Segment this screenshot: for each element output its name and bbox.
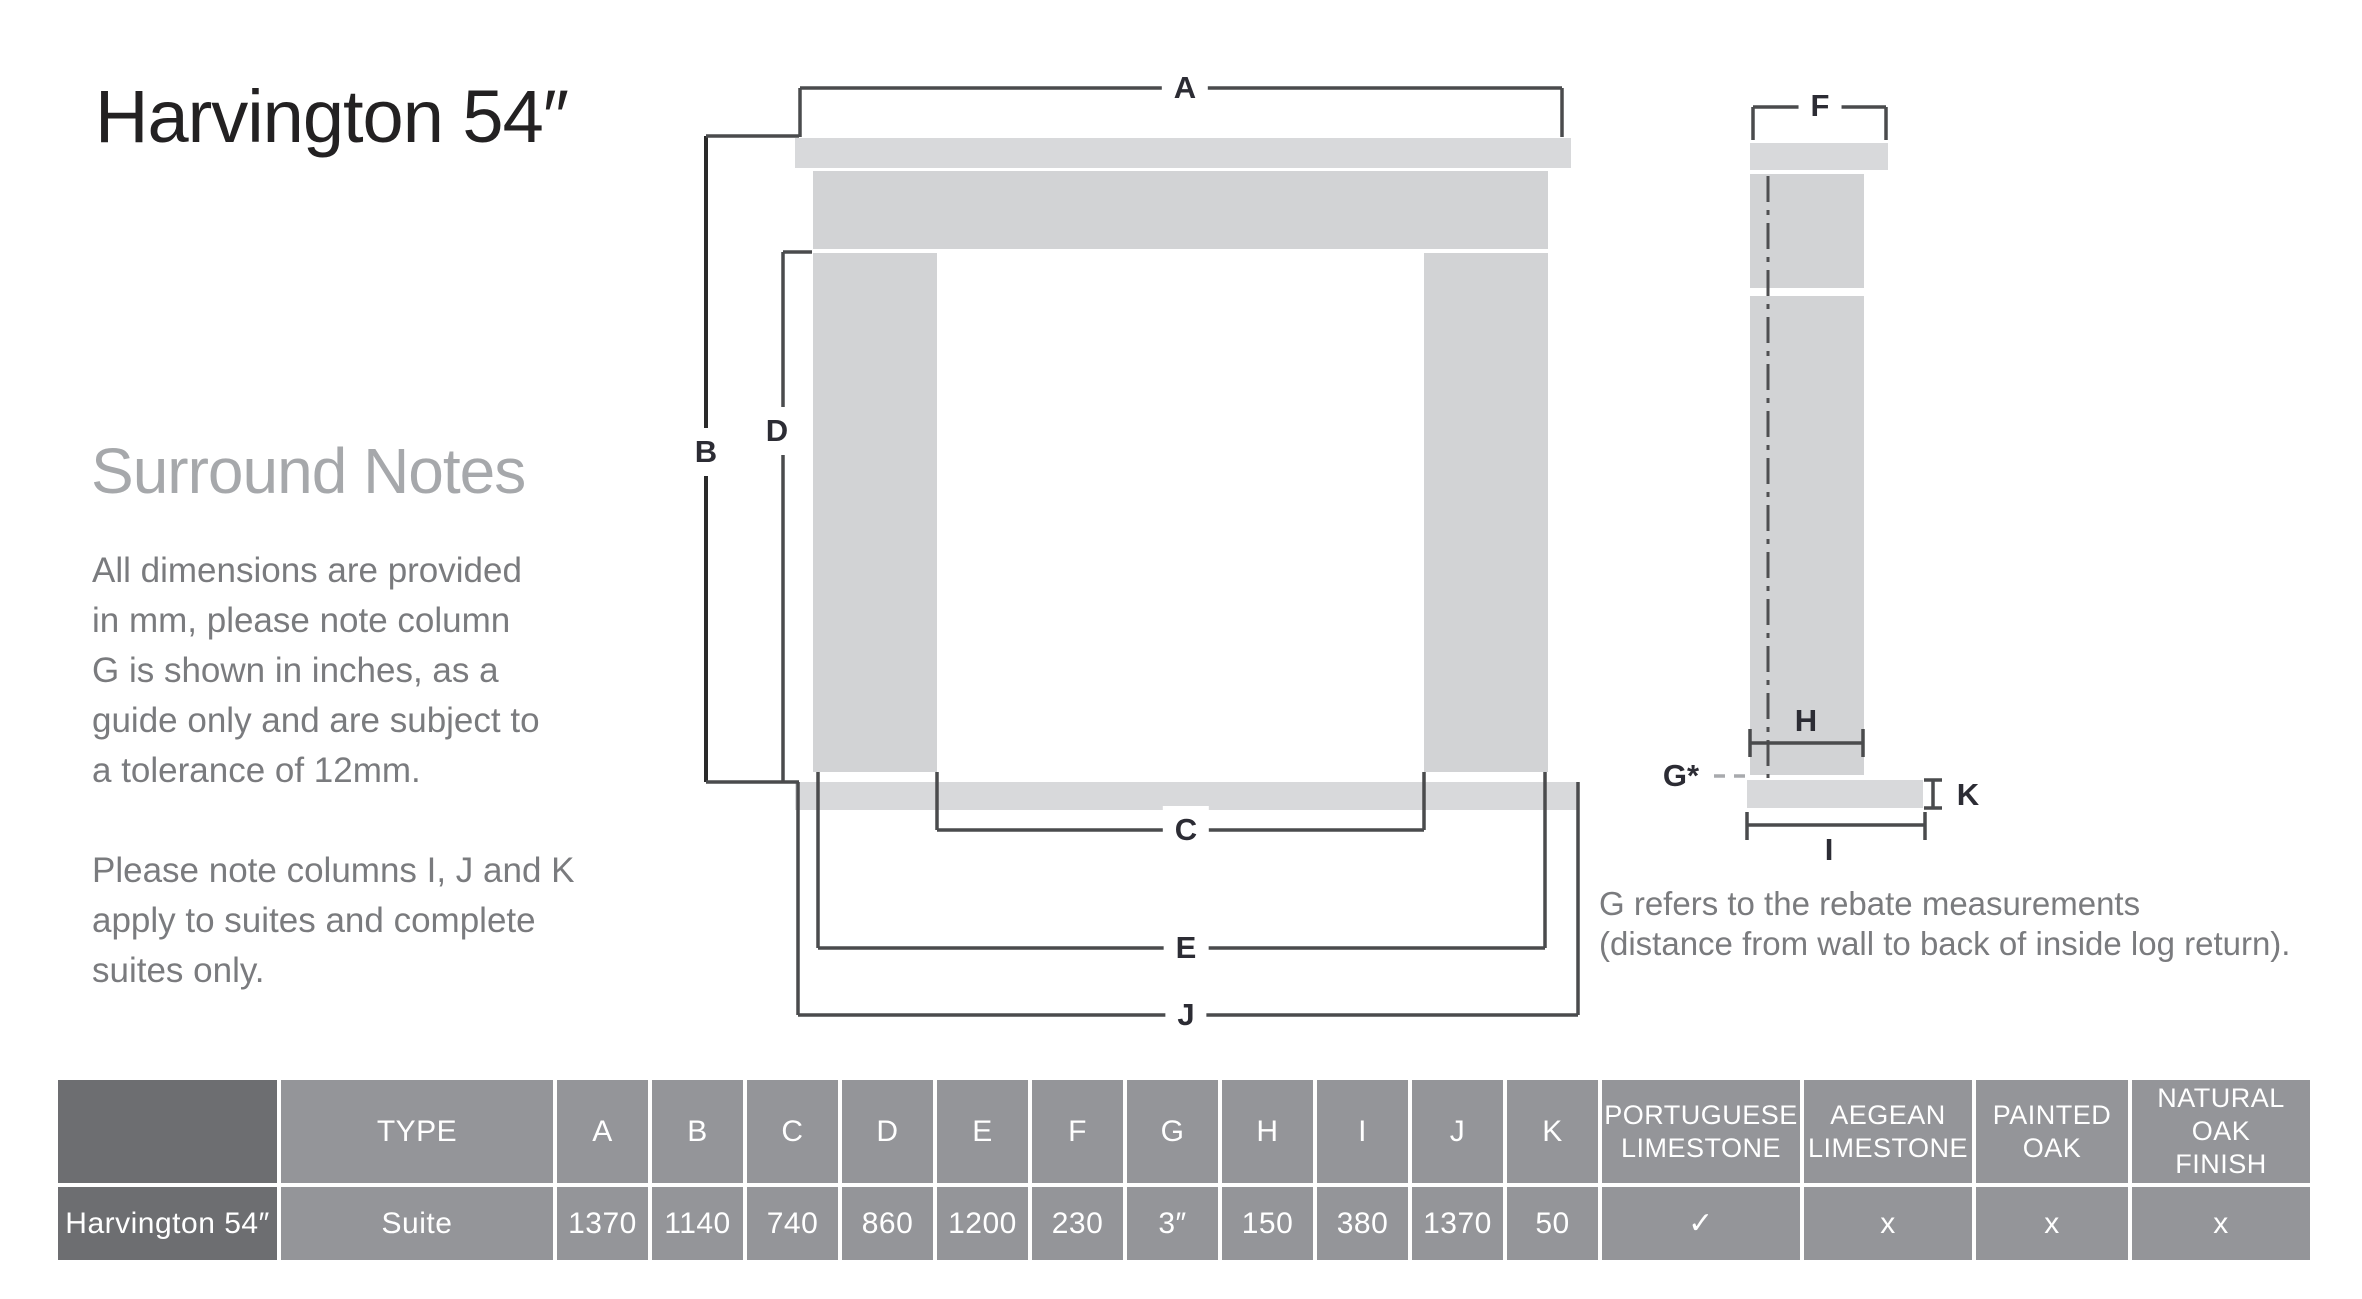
dim-label-k: K — [1957, 777, 1979, 813]
table-header-type: TYPE — [281, 1080, 553, 1183]
dim-k-bracket — [1924, 780, 1942, 808]
table-value-c: 740 — [747, 1187, 838, 1260]
dim-label-a: A — [1162, 64, 1208, 112]
table-value-f: 230 — [1032, 1187, 1123, 1260]
spec-table: TYPE A B C D E F G H I J K PORTUGUESE LI… — [58, 1080, 2310, 1260]
dim-label-c: C — [1163, 806, 1209, 854]
table-value-h: 150 — [1222, 1187, 1313, 1260]
table-header-dim-f: F — [1032, 1080, 1123, 1183]
dim-label-e: E — [1164, 924, 1209, 972]
table-header-dim-g: G — [1127, 1080, 1218, 1183]
table-value-a: 1370 — [557, 1187, 648, 1260]
spec-sheet-page: Harvington 54″ Surround Notes All dimens… — [0, 0, 2362, 1299]
dim-label-b: B — [683, 428, 729, 476]
dim-i-bracket — [1747, 812, 1925, 840]
front-right-leg — [1424, 253, 1548, 772]
table-header-painted-oak: PAINTED OAK — [1976, 1080, 2128, 1183]
table-row-name: Harvington 54″ — [58, 1187, 277, 1260]
side-shelf — [1750, 143, 1888, 170]
table-header-portuguese-limestone: PORTUGUESE LIMESTONE — [1602, 1080, 1800, 1183]
table-value-i: 380 — [1317, 1187, 1408, 1260]
dim-label-d: D — [754, 407, 800, 455]
table-header-dim-b: B — [652, 1080, 743, 1183]
table-value-painted-oak: x — [1976, 1187, 2128, 1260]
table-header-dim-h: H — [1222, 1080, 1313, 1183]
table-value-aegean-limestone: x — [1804, 1187, 1972, 1260]
rebate-caption: G refers to the rebate measurements (dis… — [1599, 884, 2290, 964]
table-header-dim-k: K — [1507, 1080, 1598, 1183]
side-view — [1747, 143, 1923, 808]
table-header-dim-d: D — [842, 1080, 933, 1183]
table-value-e: 1200 — [937, 1187, 1028, 1260]
dim-d-bracket — [783, 252, 812, 782]
table-header-aegean-limestone: AEGEAN LIMESTONE — [1804, 1080, 1972, 1183]
table-header-dim-e: E — [937, 1080, 1028, 1183]
table-header-dim-j: J — [1412, 1080, 1503, 1183]
front-shelf — [795, 138, 1571, 168]
table-header-dim-i: I — [1317, 1080, 1408, 1183]
table-value-j: 1370 — [1412, 1187, 1503, 1260]
table-value-g: 3″ — [1127, 1187, 1218, 1260]
dim-label-h: H — [1795, 703, 1817, 739]
table-corner-cell — [58, 1080, 277, 1183]
table-header-dim-c: C — [747, 1080, 838, 1183]
table-row-type: Suite — [281, 1187, 553, 1260]
side-hearth — [1747, 780, 1923, 808]
front-view — [795, 138, 1578, 810]
table-value-natural-oak-finish: x — [2132, 1187, 2310, 1260]
dim-label-f: F — [1799, 82, 1842, 130]
table-value-b: 1140 — [652, 1187, 743, 1260]
dim-label-g: G* — [1663, 758, 1699, 794]
table-header-dim-a: A — [557, 1080, 648, 1183]
table-value-portuguese-limestone: ✓ — [1602, 1187, 1800, 1260]
dim-label-j: J — [1165, 991, 1206, 1039]
table-value-d: 860 — [842, 1187, 933, 1260]
dim-label-i: I — [1825, 832, 1834, 868]
table-header-natural-oak-finish: NATURAL OAK FINISH — [2132, 1080, 2310, 1183]
front-left-leg — [813, 253, 937, 772]
table-value-k: 50 — [1507, 1187, 1598, 1260]
front-frieze — [813, 171, 1548, 249]
